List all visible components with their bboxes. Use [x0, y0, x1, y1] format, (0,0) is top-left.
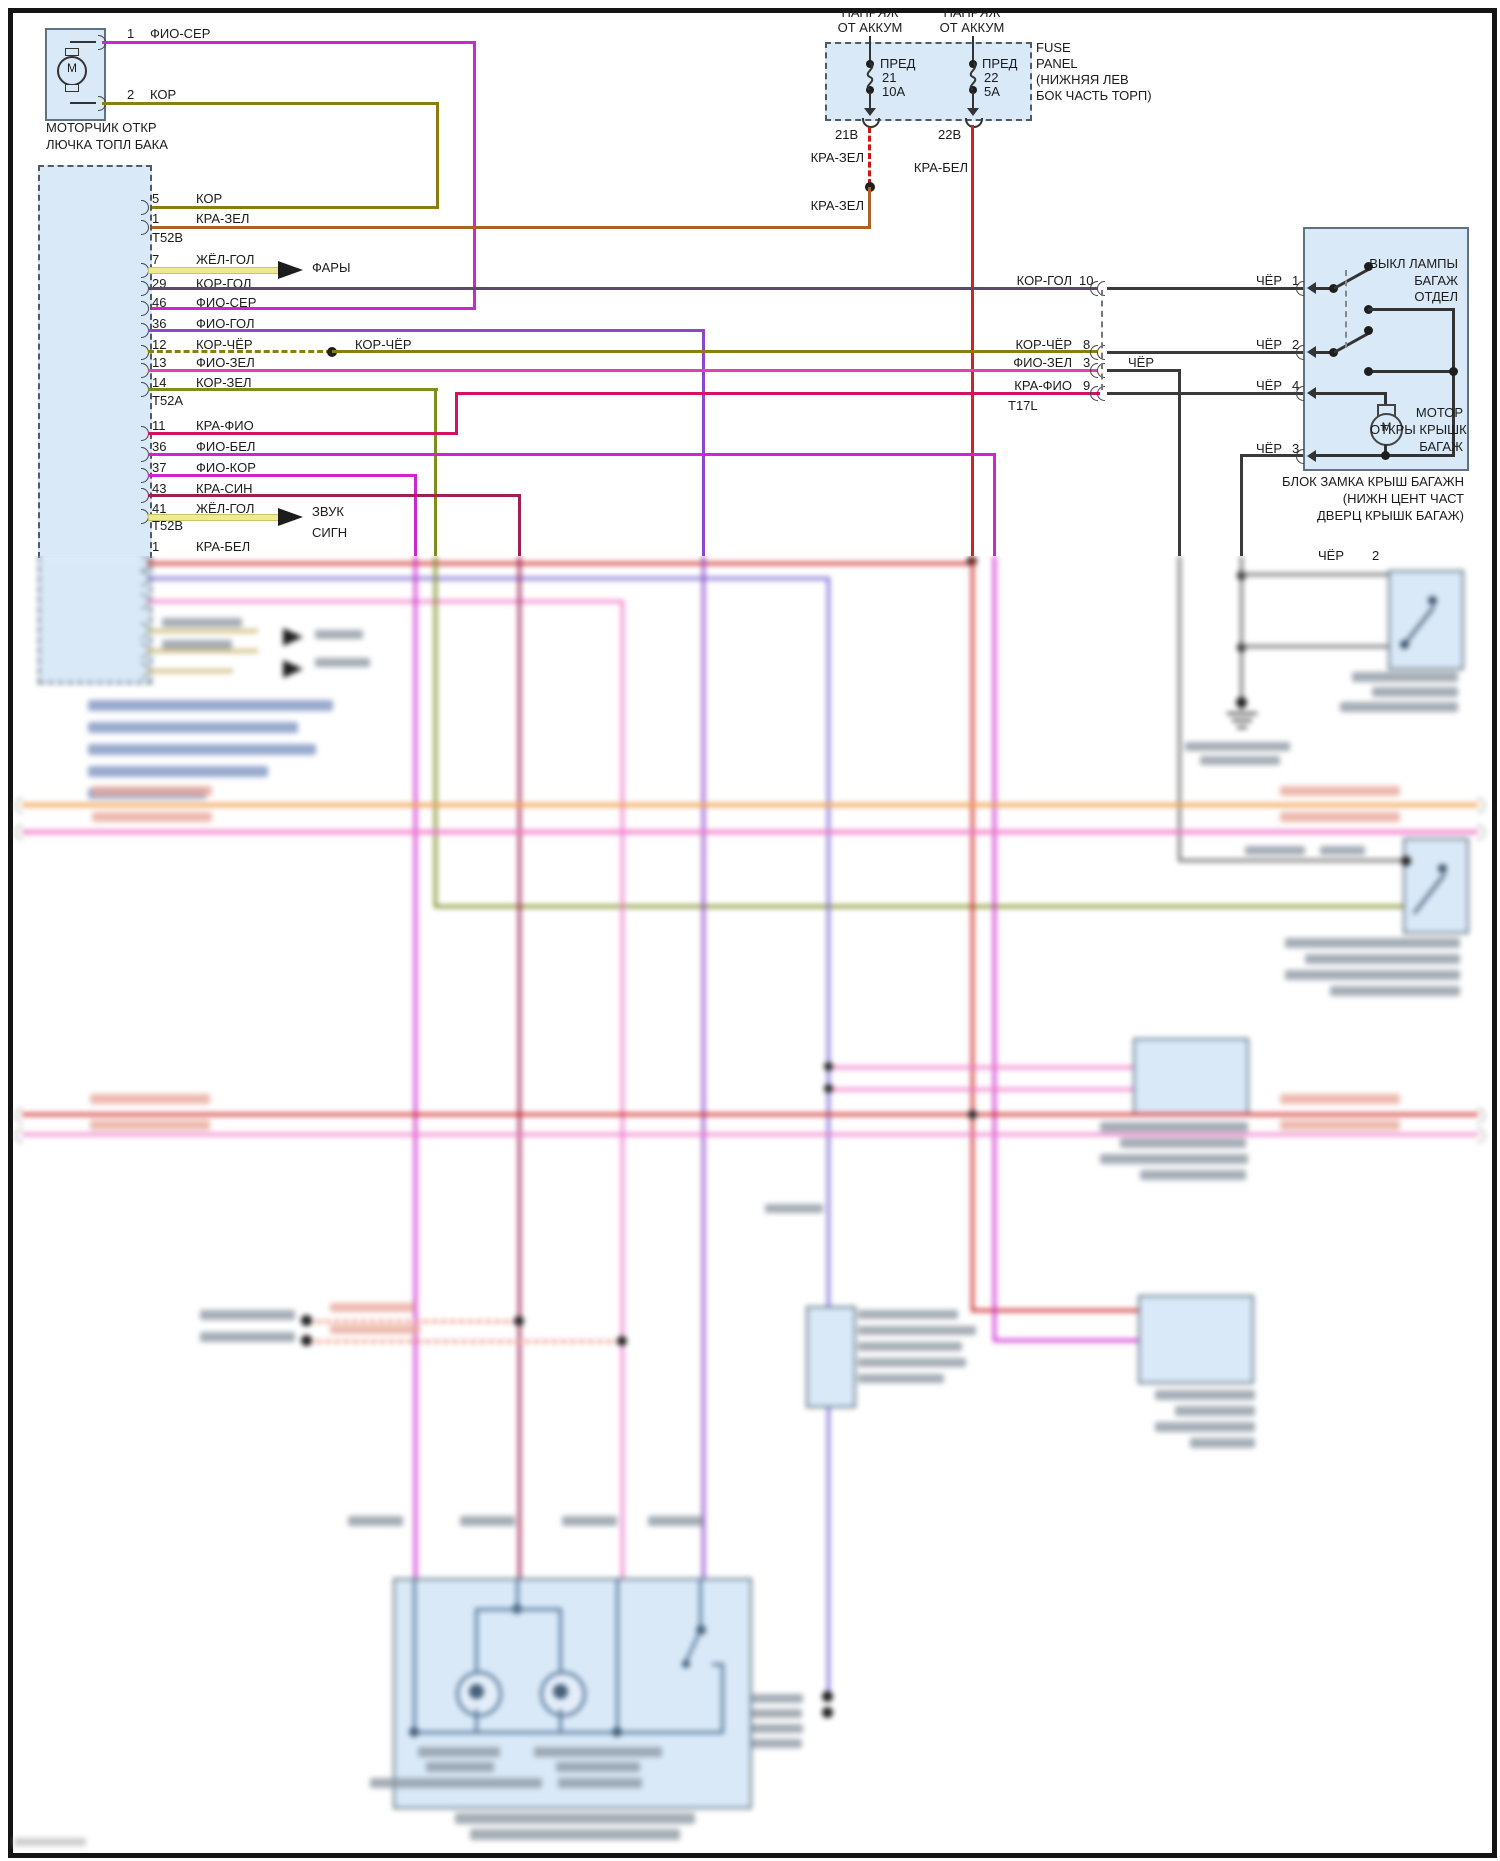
wire-red-long [22, 1113, 1478, 1116]
fuse2-amp: 5А [984, 85, 1000, 99]
wire-kra-zel-dashed [868, 127, 871, 185]
blurred-arrow-icon [283, 660, 303, 678]
pin-number: 36 [152, 440, 166, 454]
blurred-label-bar [162, 640, 232, 649]
connector-dot [822, 1707, 833, 1718]
right-pin-num: 8 [1083, 338, 1090, 352]
edge-connector [15, 825, 23, 840]
wire-cher2-h [1240, 573, 1388, 576]
blurred-caption-bar [455, 1813, 695, 1824]
blurred-label-bar [370, 1778, 542, 1788]
blurred-label-bar [200, 1332, 295, 1342]
connector-id-t52b: T52B [152, 231, 183, 245]
motor-brush-bottom [65, 84, 79, 92]
wire-magenta-long [22, 1133, 1478, 1136]
wire-cher [1178, 369, 1181, 556]
ground-dot [1236, 697, 1247, 708]
right-wire-label: ФИО-ЗЕЛ [1002, 356, 1072, 370]
zvuk-arrow-label-1: ЗВУК [312, 505, 344, 519]
blurred-label-bar [1280, 1094, 1400, 1104]
wire-fio-ser [473, 41, 476, 310]
pin-wire-label: КРА-ЗЕЛ [196, 212, 249, 226]
blurred-wire-label [562, 1516, 617, 1526]
switch-gang-dashed [1345, 270, 1347, 348]
blurred-label-bar [1320, 846, 1365, 855]
blurred-wire-label [348, 1516, 403, 1526]
pin-number: 13 [152, 356, 166, 370]
wire-cher-h [1240, 645, 1388, 648]
switch-dot [1438, 864, 1447, 873]
blurred-label-bar [330, 1325, 420, 1334]
wire-kra-zel-label-1: КРА-ЗЕЛ [794, 151, 864, 165]
blurred-label-bar [1175, 1406, 1255, 1416]
block-caption-3: ДВЕРЦ КРЫШК БАГАЖ) [1230, 509, 1464, 523]
blurred-caption-bar [88, 766, 268, 777]
blurred-label-bar [90, 1120, 210, 1130]
block-pin-bump [1296, 281, 1304, 296]
fuse2-out-arrow-icon [967, 108, 979, 116]
blurred-label-bar [90, 1094, 210, 1104]
pin-number: 1 [152, 540, 159, 554]
wire-pink-v [621, 600, 624, 1578]
wire-kra-zel-solid [148, 226, 871, 229]
blurred-label-bar [558, 1778, 642, 1788]
wire-kor-gol [148, 287, 1097, 290]
bulb-center-dot [553, 1684, 568, 1699]
connector-id-t52b-2: T52B [152, 519, 183, 533]
wire-pink-h [148, 600, 624, 603]
wire-tan [148, 669, 233, 673]
fuse2-out-label: 22В [938, 128, 961, 142]
wire-kor [148, 206, 439, 209]
blurred-label-bar [1305, 954, 1460, 964]
blurred-switch-box-a [1388, 570, 1464, 670]
wire-fio-gol-v [702, 556, 705, 1578]
blurred-label-bar [1155, 1390, 1255, 1400]
blurred-label-bar [858, 1342, 962, 1351]
wire-kra-sin [148, 494, 521, 497]
blurred-fineprint-bar [14, 1838, 86, 1846]
inner-wire [616, 1578, 619, 1734]
right-pin-num: 3 [1083, 356, 1090, 370]
blurred-label-bar [162, 618, 242, 627]
fuse-panel-name-3: (НИЖНЯЯ ЛЕВ [1036, 73, 1129, 87]
right-pin-num: 9 [1083, 379, 1090, 393]
wire-cher-v [1178, 556, 1181, 862]
trunk-switch-label-2: БАГАЖ [1358, 274, 1458, 288]
blurred-caption-bar [88, 722, 298, 733]
blurred-label-bar [858, 1310, 958, 1319]
fuse-panel-name-1: FUSE [1036, 41, 1071, 55]
blurred-label-bar [858, 1326, 976, 1335]
inner-dot [612, 1727, 622, 1737]
blurred-label-bar [556, 1762, 640, 1772]
block-lead [1384, 392, 1387, 404]
block-motor-label-1: МОТОР [1415, 406, 1463, 420]
wire-fio-bel [148, 453, 996, 456]
wire-fio-bel-v [993, 556, 996, 1342]
block-pin-bump [1296, 386, 1304, 401]
inner-dot [409, 1727, 419, 1737]
wire-kra-bel-h [148, 562, 974, 565]
wire-zhyol-gol-2 [148, 514, 280, 521]
fuse1-num: 21 [882, 71, 896, 85]
edge-connector [15, 798, 23, 813]
blurred-label-bar [1330, 986, 1460, 996]
blurred-label-bar [1285, 970, 1460, 980]
block-caption-2: (НИЖН ЦЕНТ ЧАСТ [1230, 492, 1464, 506]
block-pin-bump [1296, 345, 1304, 360]
edge-connector [1477, 1128, 1485, 1143]
blurred-label-bar [858, 1358, 966, 1367]
junction-dot [514, 1316, 524, 1326]
pin-wire-label: ФИО-БЕЛ [196, 440, 255, 454]
blurred-caption-bar [88, 700, 333, 711]
fuse1-out-lead [869, 92, 871, 109]
edge-connector [15, 1128, 23, 1143]
fuse1-amp: 10А [882, 85, 905, 99]
wire-salmon-dashed [307, 1320, 518, 1323]
right-wire-label: КРА-ФИО [1002, 379, 1072, 393]
junction-dot [617, 1336, 627, 1346]
zvuk-arrow-icon [278, 508, 303, 526]
block-lead [1314, 392, 1387, 395]
wire-kra-sin [518, 494, 521, 556]
wire-kra-bel [971, 125, 974, 556]
blurred-label-bar [1285, 938, 1460, 948]
wire-cher [1107, 369, 1181, 372]
ground-icon [1227, 712, 1257, 715]
motor-name-line1: МОТОРЧИК ОТКР [46, 121, 157, 135]
blurred-label-bar [1140, 1170, 1246, 1180]
wire-kor-cher-dashed [148, 350, 332, 353]
trunk-switch-label-1: ВЫКЛ ЛАМПЫ [1358, 257, 1458, 271]
wire-zhyol-gol [148, 267, 280, 274]
blurred-label-bar [1280, 786, 1400, 796]
motor-pin2-num: 2 [127, 88, 134, 102]
fuse-panel-name-4: БОК ЧАСТЬ ТОРП) [1036, 89, 1152, 103]
fuse1-element-icon [862, 62, 880, 92]
blurred-label-bar [1200, 756, 1280, 765]
blurred-label-bar [330, 1303, 415, 1312]
wire-kor-cher [332, 350, 1097, 353]
right-wire-label: КОР-ГОЛ [1002, 274, 1072, 288]
block-inner-wire [1368, 370, 1455, 373]
wire-kor-zel-v [434, 556, 437, 908]
edge-connector [15, 1108, 23, 1123]
wire-kra-fio [455, 392, 458, 435]
inner-dot [1364, 367, 1373, 376]
wire-fio-kor-v [414, 556, 417, 1578]
blurred-box-c [1133, 1038, 1249, 1116]
blurred-label-bar [1120, 1138, 1246, 1148]
fuse1-name: ПРЕД [880, 57, 916, 71]
cher-label: ЧЁР [1250, 274, 1282, 288]
fuse-panel-box [825, 42, 1032, 121]
wire-tan [148, 629, 258, 633]
pin-wire-label: КРА-ФИО [196, 419, 254, 433]
pin-wire-label: ФИО-КОР [196, 461, 256, 475]
wire-kor-zel-h [434, 905, 1407, 908]
stub-dot [301, 1335, 312, 1346]
connector-dot [822, 1691, 833, 1702]
motor-name-line2: ЛЮЧКА ТОПЛ БАКА [46, 138, 168, 152]
pin-number: 5 [152, 192, 159, 206]
pin-number: 7 [152, 253, 159, 267]
wire-fio-bel [993, 453, 996, 556]
bulb-center-dot [469, 1684, 484, 1699]
block-motor-label-3: БАГАЖ [1415, 440, 1463, 454]
switch2-contact [1364, 326, 1373, 335]
wire-kor-zel [148, 388, 438, 391]
wire-kor [102, 102, 439, 105]
blurred-label-bar [200, 1310, 295, 1320]
blurred-label-bar [92, 786, 212, 796]
motor-lead1 [70, 41, 96, 43]
pin-wire-label: ЖЁЛ-ГОЛ [196, 253, 254, 267]
wire-fio-gol [702, 329, 705, 556]
edge-connector [1477, 798, 1485, 813]
wire-kra-fio [148, 432, 458, 435]
wire-orange-long [22, 803, 1478, 807]
trunk-switch-label-3: ОТДЕЛ [1358, 290, 1458, 304]
blurred-label-bar [1372, 687, 1458, 697]
wire-fio-zel [148, 369, 1097, 372]
cher-label: ЧЁР [1250, 338, 1282, 352]
blurred-box-d [1138, 1295, 1254, 1384]
zvuk-arrow-label-2: СИГН [312, 526, 347, 540]
wire-kra-sin-v [518, 556, 521, 1578]
motor-brush-top [65, 48, 79, 56]
blurred-wire-label [460, 1516, 515, 1526]
motor-lead2 [70, 102, 96, 104]
block-inner-wire [1368, 308, 1455, 311]
supply1-line2: ОТ АККУМ [820, 21, 920, 35]
wire-kra-bel-v [971, 556, 974, 1312]
blurred-label-bar [1100, 1122, 1248, 1132]
fuse2-out-bump [965, 118, 983, 128]
blurred-label-bar [1185, 742, 1290, 751]
blurred-label-bar [1155, 1422, 1255, 1432]
inner-wire [721, 1663, 724, 1734]
edge-connector [1477, 825, 1485, 840]
left-connector-box-lower [38, 556, 152, 684]
inner-dot [1381, 451, 1390, 460]
fary-arrow-label: ФАРЫ [312, 261, 350, 275]
blurred-label-bar [1245, 846, 1305, 855]
blurred-center-component [806, 1306, 856, 1408]
wire-kor-zel [434, 388, 437, 556]
block-motor-label-2: ОТКРЫ КРЫШК [1370, 423, 1463, 437]
pin-wire-label: КРА-БЕЛ [196, 540, 250, 554]
wire-fio-gol [148, 329, 705, 332]
wire-kra-zel-solid [868, 187, 871, 228]
blurred-label-bar [1280, 1120, 1400, 1130]
inner-wire [413, 1578, 416, 1734]
inner-dot [1449, 367, 1458, 376]
wire-pink-feed [827, 1066, 1135, 1069]
blurred-label-bar [92, 812, 212, 822]
block-caption-1: БЛОК ЗАМКА КРЫШ БАГАЖН [1230, 475, 1464, 489]
blurred-wire-label [648, 1516, 703, 1526]
wire-kra-bel-h2 [971, 1309, 1143, 1312]
wire-kra-zel-label-2: КРА-ЗЕЛ [794, 199, 864, 213]
supply2-line2: ОТ АККУМ [922, 21, 1022, 35]
blurred-label-bar [315, 630, 363, 639]
fuse1-out-bump [862, 118, 880, 128]
wire-fio-ser [102, 41, 476, 44]
pin-number: 37 [152, 461, 166, 475]
junction-dot [1401, 856, 1411, 866]
wire-fio-bel-h [993, 1339, 1143, 1342]
inner-wire [410, 1731, 724, 1734]
inner-wire [559, 1608, 562, 1671]
wire-pink-feed [827, 1088, 1135, 1091]
fuse2-out-lead [972, 92, 974, 109]
blurred-label-bar [534, 1747, 662, 1757]
wire-pink-long [22, 830, 1478, 834]
motor-pin1-num: 1 [127, 27, 134, 41]
motor-pin2-wire: КОР [150, 88, 176, 102]
connector-link-dashed [1101, 290, 1103, 390]
motor-pin1-wire: ФИО-СЕР [150, 27, 210, 41]
blurred-label-bar [765, 1204, 823, 1213]
right-wire-label: КОР-ЧЁР [1002, 338, 1072, 352]
wire-tan [148, 649, 258, 653]
blurred-label-bar [1340, 702, 1458, 712]
switch-dot [1400, 640, 1409, 649]
stub-dot [301, 1315, 312, 1326]
wire-fio-kor [414, 474, 417, 556]
junction-dot [824, 1084, 833, 1093]
blurred-label-bar [315, 658, 370, 667]
inner-wire [699, 1578, 702, 1628]
connector-id-t52a: T52A [152, 394, 183, 408]
connector-id-t17l: T17L [1008, 399, 1038, 413]
ground-icon [1232, 719, 1252, 722]
wire-cher-3 [1240, 454, 1303, 457]
pin-number: 46 [152, 296, 166, 310]
blurred-label-bar [1100, 1154, 1248, 1164]
cher-label: ЧЁР [1250, 379, 1282, 393]
blurred-label-bar [418, 1747, 500, 1757]
fuse2-name: ПРЕД [982, 57, 1018, 71]
ground-icon [1237, 726, 1247, 729]
supply2-line1: НАПРЯЖ [922, 6, 1022, 20]
left-connector-box [38, 165, 152, 558]
blurred-caption-bar [88, 744, 316, 755]
inner-wire [475, 1608, 562, 1611]
pin-number: 1 [152, 212, 159, 226]
pin-wire-label: ФИО-ЗЕЛ [196, 356, 255, 370]
pin-wire-label: ФИО-СЕР [196, 296, 256, 310]
junction-dot [824, 1062, 833, 1071]
blurred-label-bar [426, 1762, 494, 1772]
blurred-label-bar [858, 1374, 944, 1383]
fuse1-out-label: 21В [835, 128, 858, 142]
right-cher-mid-label: ЧЁР [1128, 356, 1154, 370]
blurred-label-bar [1280, 812, 1400, 822]
motor-letter: М [57, 62, 87, 75]
pin-wire-label: КОР [196, 192, 222, 206]
supply1-line1: НАПРЯЖ [820, 6, 920, 20]
switch-dot [1428, 596, 1437, 605]
blurred-arrow-icon [283, 628, 303, 646]
wiring-diagram-page: М 1 ФИО-СЕР 2 КОР МОТОРЧИК ОТКР ЛЮЧКА ТО… [0, 0, 1500, 1861]
switch-contact [682, 1660, 690, 1668]
fuse2-num: 22 [984, 71, 998, 85]
inner-wire [475, 1608, 478, 1671]
wire-cher-h [1178, 859, 1407, 862]
fuse-panel-name-2: PANEL [1036, 57, 1078, 71]
fary-arrow-icon [278, 261, 303, 279]
edge-connector [1477, 1108, 1485, 1123]
blurred-label-bar [1190, 1438, 1255, 1448]
wire-blue-h [148, 577, 830, 580]
junction-dot [968, 1110, 977, 1119]
wire-kor [436, 102, 439, 209]
wire-fio-kor [148, 474, 417, 477]
blurred-caption-bar [470, 1829, 680, 1840]
pin-number: 11 [152, 419, 166, 433]
fuse1-out-arrow-icon [864, 108, 876, 116]
wire-salmon-dashed [307, 1340, 621, 1343]
blurred-label-bar [1352, 672, 1458, 682]
fuse2-element-icon [965, 62, 983, 92]
wire-kra-bel-label: КРА-БЕЛ [898, 161, 968, 175]
